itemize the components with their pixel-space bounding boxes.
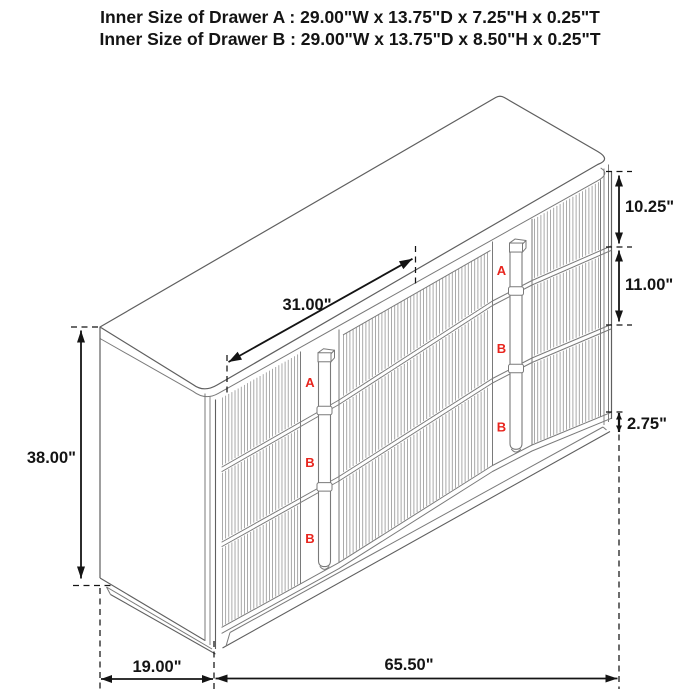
base-plinth <box>223 427 611 648</box>
base-height-dim-label: 2.75" <box>627 415 667 433</box>
drawer-a-height-dim-label: 10.25" <box>625 198 674 216</box>
handle-right <box>509 239 527 452</box>
drawer-b1-label-left: B <box>305 455 314 470</box>
drawer-b-height-dim-label: 11.00" <box>625 276 673 294</box>
drawer-a-label-left: A <box>305 375 315 390</box>
drawer-a-label-right: A <box>497 263 507 278</box>
handle-left <box>317 349 335 570</box>
top-diagonal-dim-label: 31.00" <box>282 296 331 314</box>
drawer-b2-label-left: B <box>305 531 314 546</box>
sideboard-line-art <box>100 96 612 654</box>
drawer-b2-label-right: B <box>497 420 506 435</box>
dimension-diagram-page: Inner Size of Drawer A : 29.00"W x 13.75… <box>0 0 700 700</box>
depth-dim-label: 19.00" <box>132 658 181 676</box>
top-surface <box>100 96 605 396</box>
width-dim-label: 65.50" <box>384 656 433 674</box>
drawer-b1-label-right: B <box>497 341 506 356</box>
height-dim-label: 38.00" <box>27 449 76 467</box>
sideboard-dimension-drawing: 38.00" 10.25" 11.00" 2.75" 31.00" 19.00"… <box>0 0 700 700</box>
